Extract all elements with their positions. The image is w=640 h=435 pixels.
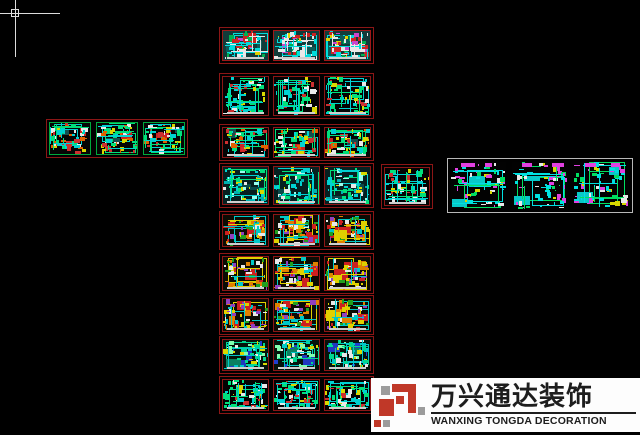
cad-geometry: [470, 173, 472, 177]
cad-geometry: [295, 396, 297, 399]
cad-geometry: [311, 403, 312, 405]
cad-drawing[interactable]: [324, 339, 371, 371]
cad-geometry: [255, 171, 258, 173]
cad-geometry: [224, 226, 254, 227]
cad-geometry: [342, 353, 346, 357]
cad-geometry: [227, 154, 265, 156]
cad-geometry: [74, 145, 80, 148]
cad-geometry: [257, 226, 259, 231]
cad-geometry: [263, 97, 265, 102]
cad-geometry: [125, 127, 131, 129]
cad-geometry: [251, 361, 257, 364]
cad-geometry: [275, 185, 277, 186]
cad-geometry: [366, 404, 369, 406]
cad-drawing[interactable]: [273, 298, 320, 332]
cad-geometry: [316, 309, 317, 330]
cad-drawing[interactable]: [273, 76, 320, 116]
cad-geometry: [561, 177, 565, 180]
cad-drawing[interactable]: [49, 122, 91, 155]
cad-geometry: [555, 190, 556, 191]
cad-geometry: [350, 218, 353, 221]
cad-geometry: [249, 359, 253, 361]
cad-geometry: [611, 163, 620, 167]
cad-geometry: [239, 85, 240, 111]
cad-geometry: [574, 178, 578, 182]
cad-geometry: [61, 123, 62, 138]
cad-drawing[interactable]: [324, 30, 371, 61]
cad-geometry: [278, 112, 316, 114]
cad-geometry: [337, 364, 341, 365]
cad-geometry: [309, 182, 310, 200]
cad-geometry: [503, 171, 506, 173]
cad-geometry: [524, 186, 525, 209]
cad-geometry: [304, 98, 306, 99]
cad-drawing[interactable]: [222, 256, 269, 291]
cad-drawing[interactable]: [222, 30, 269, 61]
cad-geometry: [353, 108, 358, 109]
logo-block: [383, 420, 390, 427]
cad-geometry: [296, 179, 299, 183]
cad-geometry: [614, 175, 619, 178]
cad-geometry: [327, 345, 333, 347]
cad-geometry: [329, 232, 333, 236]
cad-geometry: [338, 42, 341, 45]
cad-drawing[interactable]: [273, 339, 320, 371]
cad-geometry: [284, 390, 286, 392]
cad-geometry: [62, 144, 64, 145]
cad-geometry: [326, 85, 328, 90]
cad-geometry: [282, 171, 302, 172]
cad-geometry: [588, 169, 589, 172]
cad-geometry: [338, 228, 339, 232]
cad-geometry: [336, 389, 337, 405]
cad-geometry: [329, 57, 367, 59]
cad-drawing[interactable]: [324, 379, 371, 411]
cad-geometry: [288, 390, 291, 393]
cad-geometry: [400, 192, 402, 194]
cad-geometry: [299, 384, 300, 408]
cad-geometry: [351, 398, 355, 402]
cad-drawing[interactable]: [384, 167, 430, 206]
cad-drawing[interactable]: [512, 162, 567, 209]
cad-geometry: [363, 346, 366, 350]
cad-geometry: [109, 148, 136, 149]
cad-geometry: [329, 201, 367, 203]
cad-geometry: [335, 299, 336, 327]
cad-geometry: [329, 243, 367, 245]
cad-geometry: [224, 265, 226, 267]
cad-geometry: [453, 171, 499, 172]
cad-geometry: [227, 243, 265, 245]
cad-geometry: [481, 204, 486, 205]
cad-geometry: [312, 90, 317, 92]
cad-geometry: [574, 199, 579, 200]
cad-geometry: [54, 127, 88, 128]
cad-geometry: [312, 172, 313, 204]
cad-geometry: [267, 353, 268, 357]
cad-geometry: [252, 320, 267, 321]
cad-geometry: [366, 352, 367, 356]
cad-geometry: [287, 33, 288, 51]
cad-drawing[interactable]: [96, 122, 138, 155]
cad-geometry: [339, 280, 344, 283]
cad-geometry: [224, 181, 229, 184]
cad-geometry: [328, 386, 358, 387]
left-group: [46, 119, 188, 158]
cad-geometry: [452, 203, 478, 204]
cad-geometry: [227, 287, 265, 289]
cad-geometry: [554, 202, 555, 206]
cad-geometry: [228, 149, 230, 152]
cad-geometry: [359, 87, 360, 114]
cad-geometry: [318, 215, 319, 242]
cad-geometry: [255, 382, 256, 404]
cad-geometry: [278, 287, 316, 289]
cad-geometry: [285, 229, 287, 232]
cad-drawing[interactable]: [273, 214, 320, 247]
cad-geometry: [325, 314, 326, 318]
cad-geometry: [364, 381, 366, 384]
cad-geometry: [329, 354, 334, 359]
cad-geometry: [229, 341, 233, 345]
cad-geometry: [342, 346, 368, 347]
cad-drawing[interactable]: [222, 339, 269, 371]
cad-geometry: [311, 82, 315, 87]
cad-geometry: [389, 196, 425, 197]
cad-geometry: [227, 112, 265, 114]
cad-geometry: [346, 394, 351, 397]
cad-geometry: [474, 186, 491, 187]
cad-geometry: [318, 172, 319, 204]
cad-geometry: [344, 361, 348, 363]
cad-geometry: [329, 367, 367, 369]
cad-geometry: [245, 384, 246, 397]
cad-geometry: [391, 192, 392, 194]
cad-geometry: [478, 164, 480, 166]
cad-drawing[interactable]: [451, 162, 506, 209]
cad-geometry: [75, 151, 81, 153]
cad-geometry: [274, 142, 276, 145]
cad-geometry: [292, 49, 293, 51]
cad-drawing[interactable]: [324, 298, 371, 332]
cad-geometry: [286, 261, 288, 265]
cad-geometry: [225, 270, 231, 273]
cad-geometry: [594, 187, 595, 202]
cad-geometry: [83, 130, 85, 134]
cad-geometry: [619, 176, 621, 179]
cad-geometry: [407, 199, 426, 200]
cad-drawing[interactable]: [324, 166, 371, 205]
cad-geometry: [259, 197, 264, 199]
logo-block: [408, 384, 416, 413]
cad-geometry: [147, 145, 151, 147]
cad-geometry: [262, 224, 264, 227]
cad-geometry: [264, 275, 265, 278]
cad-geometry: [359, 278, 365, 280]
cad-geometry: [339, 108, 354, 109]
cad-geometry: [344, 186, 347, 188]
cad-geometry: [227, 195, 260, 196]
cad-geometry: [574, 201, 578, 202]
cad-geometry: [304, 240, 308, 242]
cad-drawing[interactable]: [273, 256, 320, 291]
cad-geometry: [365, 145, 367, 147]
cad-geometry: [261, 399, 264, 404]
cad-geometry: [490, 191, 493, 194]
cad-drawing[interactable]: [574, 162, 629, 209]
cad-geometry: [459, 183, 503, 184]
cad-geometry: [266, 287, 268, 290]
cad-geometry: [171, 134, 176, 138]
cad-geometry: [226, 102, 264, 103]
cad-geometry: [516, 202, 518, 205]
cad-geometry: [257, 235, 260, 238]
cad-geometry: [363, 306, 367, 308]
sheet-row-4: [219, 163, 374, 208]
cad-geometry: [245, 39, 248, 41]
cad-geometry: [232, 348, 267, 349]
cad-drawing[interactable]: [222, 166, 269, 205]
cad-geometry: [277, 39, 278, 42]
cad-drawing[interactable]: [222, 127, 269, 158]
cad-geometry: [327, 322, 328, 323]
cad-geometry: [293, 227, 294, 241]
cad-geometry: [606, 186, 609, 190]
cad-geometry: [330, 388, 334, 389]
cad-geometry: [227, 201, 265, 203]
cad-drawing[interactable]: [222, 298, 269, 332]
cad-geometry: [288, 381, 318, 382]
cad-geometry: [610, 202, 616, 206]
cad-geometry: [177, 142, 178, 145]
cad-geometry: [326, 220, 328, 221]
cad-geometry: [300, 104, 304, 106]
cad-geometry: [329, 328, 367, 330]
cad-geometry: [306, 81, 311, 82]
cad-geometry: [336, 358, 341, 363]
cad-geometry: [332, 222, 338, 226]
cad-geometry: [355, 219, 356, 244]
right-group: [447, 158, 633, 213]
cad-geometry: [312, 51, 317, 56]
cad-geometry: [362, 340, 363, 355]
cad-geometry: [389, 202, 426, 204]
cad-geometry: [329, 392, 330, 406]
cad-geometry: [344, 225, 368, 226]
cad-geometry: [231, 169, 232, 197]
cad-geometry: [368, 137, 370, 139]
cad-geometry: [544, 177, 547, 179]
cad-geometry: [327, 225, 331, 229]
cad-geometry: [368, 142, 369, 144]
cad-geometry: [227, 128, 264, 129]
logo-block: [396, 396, 404, 404]
cad-geometry: [262, 92, 265, 96]
cad-geometry: [344, 177, 358, 178]
cad-geometry: [311, 354, 315, 356]
cad-geometry: [260, 264, 262, 268]
cad-drawing[interactable]: [324, 127, 371, 158]
cad-geometry: [312, 36, 313, 39]
drawings-area: [0, 0, 640, 435]
cad-geometry: [337, 148, 343, 150]
cad-geometry: [260, 40, 261, 55]
cad-geometry: [283, 321, 289, 326]
cad-geometry: [307, 33, 309, 37]
brand-underline: [431, 412, 636, 414]
cad-geometry: [346, 281, 349, 286]
cad-geometry: [367, 49, 368, 59]
cad-geometry: [313, 385, 316, 386]
cad-geometry: [254, 222, 255, 245]
cad-geometry: [344, 400, 348, 401]
cad-drawing[interactable]: [324, 214, 371, 247]
cad-geometry: [621, 198, 626, 203]
cad-geometry: [424, 187, 427, 190]
cad-drawing[interactable]: [273, 127, 320, 158]
cad-geometry: [109, 123, 135, 124]
cad-geometry: [294, 100, 295, 104]
cad-geometry: [278, 168, 309, 169]
cad-geometry: [587, 203, 590, 204]
cad-geometry: [359, 148, 363, 153]
cad-geometry: [346, 148, 348, 150]
cad-geometry: [240, 170, 256, 171]
cad-geometry: [233, 258, 236, 259]
cad-drawing[interactable]: [222, 214, 269, 247]
cad-drawing[interactable]: [273, 166, 320, 205]
cad-geometry: [358, 309, 360, 313]
cad-geometry: [337, 391, 338, 407]
cad-geometry: [576, 173, 579, 177]
cad-geometry: [477, 172, 481, 176]
cad-geometry: [336, 137, 340, 139]
cad-geometry: [263, 312, 267, 314]
cad-geometry: [333, 265, 338, 268]
cad-geometry: [276, 322, 279, 324]
cad-geometry: [251, 260, 255, 264]
cad-geometry: [457, 186, 459, 191]
cad-geometry: [261, 151, 263, 152]
cad-geometry: [574, 186, 578, 190]
cad-geometry: [339, 403, 342, 404]
cad-geometry: [225, 231, 229, 235]
cad-geometry: [522, 163, 532, 167]
cad-geometry: [337, 322, 340, 326]
cad-geometry: [132, 141, 137, 143]
cad-geometry: [386, 193, 391, 194]
cad-geometry: [277, 312, 302, 313]
cad-geometry: [224, 324, 225, 326]
cad-geometry: [559, 185, 561, 186]
cad-geometry: [336, 52, 341, 57]
cad-geometry: [345, 83, 346, 87]
cad-geometry: [317, 381, 318, 403]
cad-geometry: [364, 393, 370, 397]
cad-geometry: [348, 188, 351, 189]
cad-geometry: [306, 311, 309, 314]
cad-geometry: [367, 33, 369, 36]
watermark: 万兴通达装饰 WANXING TONGDA DECORATION: [371, 378, 640, 432]
cad-geometry: [116, 142, 118, 146]
cad-geometry: [301, 257, 306, 261]
cad-geometry: [276, 109, 278, 111]
cad-geometry: [303, 89, 307, 93]
cad-geometry: [327, 41, 328, 43]
cad-geometry: [549, 182, 554, 185]
cad-drawing[interactable]: [222, 379, 269, 411]
cad-geometry: [312, 107, 317, 111]
cad-geometry: [313, 272, 318, 275]
cad-geometry: [164, 129, 181, 130]
cad-geometry: [333, 258, 334, 269]
cad-geometry: [297, 308, 299, 310]
cad-viewport: 万兴通达装饰 WANXING TONGDA DECORATION: [0, 0, 640, 435]
cad-geometry: [265, 40, 267, 42]
cad-geometry: [231, 306, 232, 327]
cad-geometry: [301, 86, 307, 88]
cad-geometry: [292, 390, 308, 391]
watermark-text: 万兴通达装饰 WANXING TONGDA DECORATION: [431, 383, 636, 426]
cad-drawing[interactable]: [273, 30, 320, 61]
cad-geometry: [345, 36, 348, 39]
cad-geometry: [274, 360, 278, 364]
cad-geometry: [303, 226, 308, 227]
cad-geometry: [275, 237, 309, 238]
cad-geometry: [110, 130, 113, 134]
cad-geometry: [329, 308, 330, 328]
cad-drawing[interactable]: [324, 76, 371, 116]
cad-geometry: [226, 319, 228, 323]
cad-geometry: [311, 385, 312, 395]
cad-geometry: [306, 384, 307, 394]
cad-geometry: [237, 358, 240, 360]
cad-geometry: [225, 169, 265, 170]
cad-geometry: [264, 327, 265, 329]
cad-geometry: [149, 128, 163, 129]
cad-geometry: [283, 307, 288, 309]
cad-geometry: [493, 186, 497, 188]
cad-geometry: [557, 167, 560, 170]
cad-geometry: [310, 304, 316, 306]
cad-geometry: [289, 103, 292, 104]
cad-geometry: [98, 126, 112, 127]
cad-geometry: [304, 136, 309, 140]
cad-geometry: [241, 227, 243, 230]
cad-drawing[interactable]: [273, 379, 320, 411]
cad-drawing[interactable]: [222, 76, 269, 116]
cad-geometry: [621, 173, 625, 175]
cad-geometry: [301, 231, 302, 232]
cad-geometry: [226, 129, 229, 133]
cad-drawing[interactable]: [143, 122, 185, 155]
cad-geometry: [327, 261, 329, 263]
cad-drawing[interactable]: [324, 256, 371, 291]
cad-geometry: [327, 83, 331, 86]
cad-geometry: [252, 84, 257, 86]
cad-geometry: [308, 275, 312, 278]
cad-geometry: [158, 132, 163, 137]
cad-geometry: [247, 240, 252, 241]
cad-geometry: [325, 168, 328, 169]
cad-geometry: [284, 129, 285, 146]
cad-geometry: [316, 156, 317, 157]
cad-geometry: [262, 258, 264, 262]
cad-geometry: [225, 141, 228, 145]
cad-geometry: [274, 151, 276, 153]
cad-geometry: [292, 36, 293, 37]
cad-geometry: [243, 187, 246, 190]
